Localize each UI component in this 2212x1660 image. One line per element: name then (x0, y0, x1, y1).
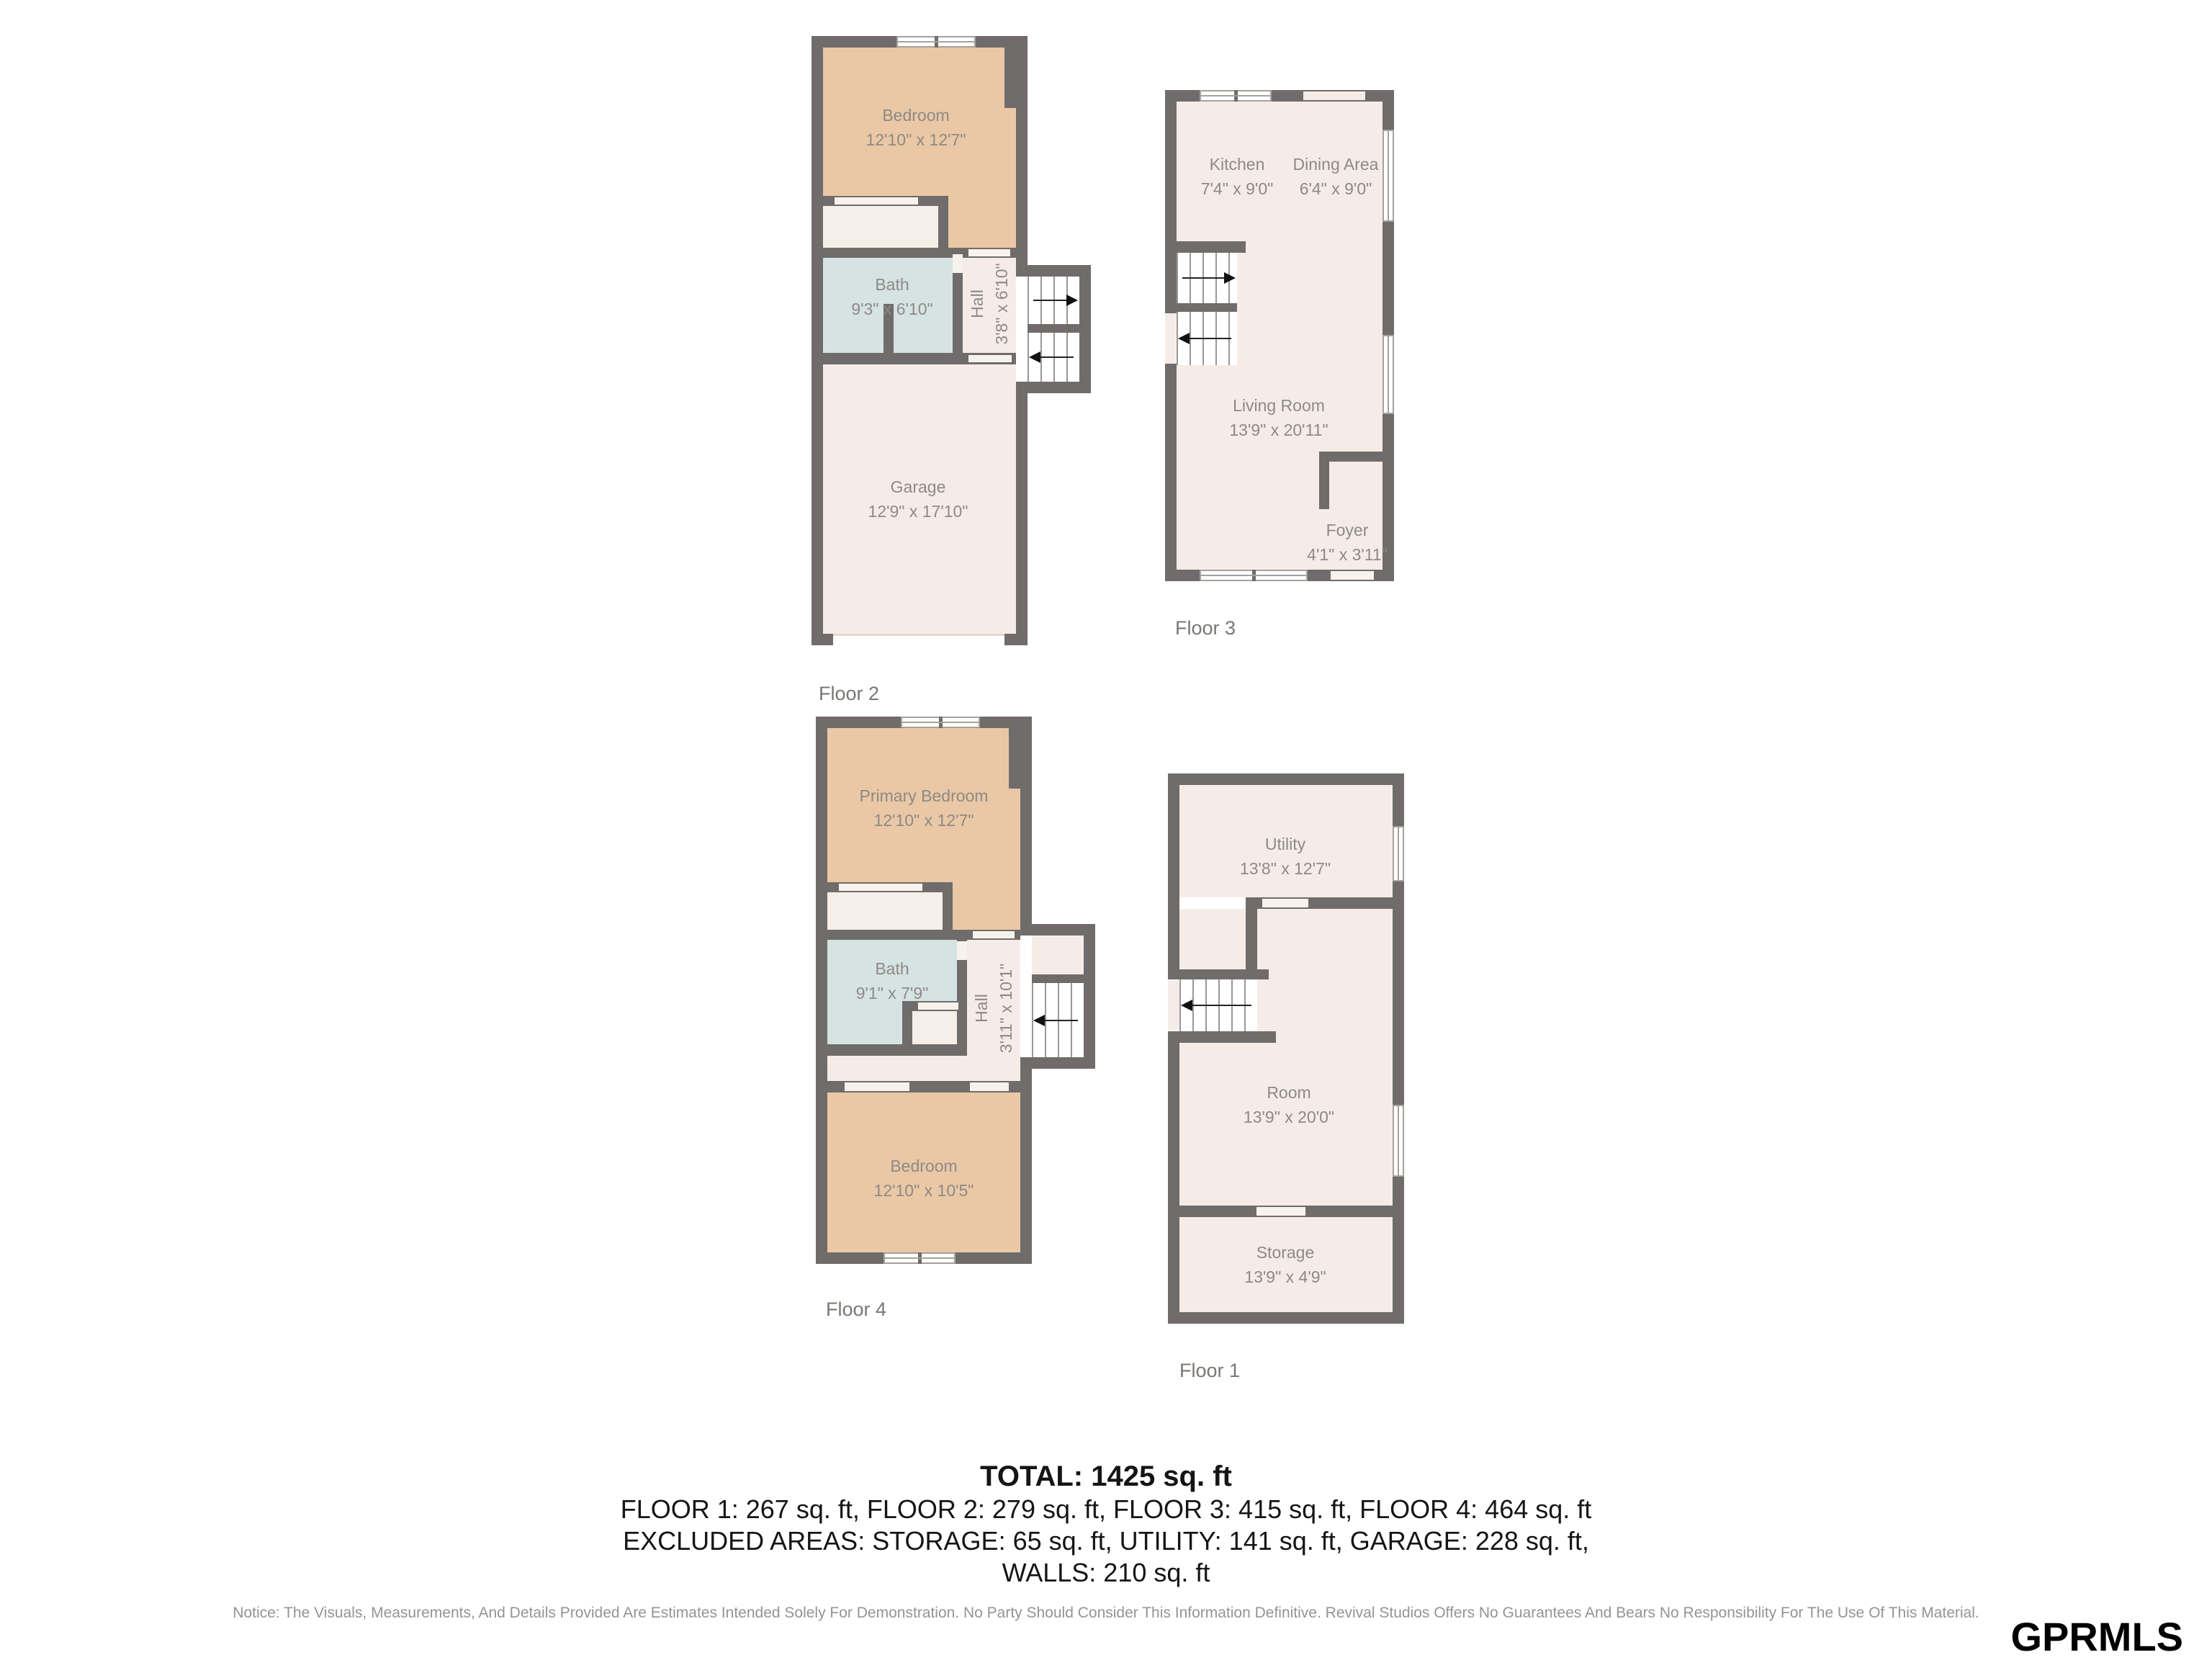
room-dims: 4'1" x 3'11" (1307, 542, 1388, 567)
staircase-up (1177, 253, 1237, 303)
door-opening (1262, 899, 1308, 907)
bedroom-closet (827, 892, 943, 930)
door-opening (968, 249, 1010, 256)
room-label-hall: Hall 3'11" x 10'1" (969, 964, 1018, 1053)
gprmls-logo: GPRMLS (2010, 1613, 2183, 1660)
floor-areas-text: FLOOR 1: 267 sq. ft, FLOOR 2: 279 sq. ft… (0, 1494, 2212, 1525)
room-dims: 3'11" x 10'1" (994, 964, 1018, 1053)
floor-1-plan: Utility 13'8" x 12'7" Room 13'9" x 20'0"… (1168, 773, 1407, 1393)
floor-label: Floor 2 (819, 683, 879, 705)
window (1382, 130, 1394, 222)
room-label-bedroom: Bedroom 12'10" x 10'5" (874, 1154, 974, 1203)
wall-segment (1028, 382, 1091, 393)
room-dims: 3'8" x 6'10" (989, 263, 1014, 344)
wall-segment (1032, 974, 1084, 983)
wall-segment (1016, 382, 1028, 645)
door-opening (957, 941, 967, 960)
corridor-area (827, 1056, 967, 1081)
room-label-foyer: Foyer 4'1" x 3'11" (1307, 518, 1388, 567)
window (901, 717, 980, 728)
window (1382, 335, 1394, 414)
staircase-down (1028, 333, 1079, 382)
staircase-down (1179, 979, 1257, 1031)
room-name: Living Room (1229, 393, 1328, 418)
room-name: Bedroom (866, 103, 966, 127)
room-dims: 12'10" x 10'5" (874, 1178, 974, 1203)
stair-direction-arrow (1033, 300, 1068, 301)
door-opening (970, 1082, 1009, 1091)
walls-area-text: WALLS: 210 sq. ft (0, 1557, 2212, 1589)
door-opening (973, 931, 1015, 938)
floor-label: Floor 4 (826, 1298, 886, 1321)
room-label-kitchen: Kitchen 7'4" x 9'0" (1201, 152, 1274, 201)
excluded-areas-text: EXCLUDED AREAS: STORAGE: 65 sq. ft, UTIL… (0, 1525, 2212, 1557)
window (1200, 570, 1308, 581)
room-dims: 9'1" x 7'9" (856, 981, 929, 1005)
entry-opening (1168, 981, 1179, 1030)
stair-direction-arrow (1039, 356, 1074, 358)
wall-segment (827, 1044, 967, 1056)
wall-segment (1032, 1057, 1095, 1069)
room-label-living: Living Room 13'9" x 20'11" (1229, 393, 1328, 442)
room-label-primary-bedroom: Primary Bedroom 12'10" x 12'7" (860, 784, 989, 833)
wall-segment (816, 717, 827, 1264)
window (1200, 90, 1272, 102)
door-opening (839, 884, 922, 891)
bedroom-closet (823, 206, 938, 248)
room-dims: 6'4" x 9'0" (1293, 176, 1379, 201)
room-name: Hall (965, 263, 989, 344)
wall-segment (1084, 924, 1095, 1069)
wall-segment (1168, 1312, 1404, 1324)
room-dims: 12'10" x 12'7" (866, 127, 966, 152)
small-closet (912, 1011, 957, 1044)
window (884, 1252, 956, 1264)
room-name: Garage (868, 475, 968, 499)
floorplan-sheet: Bedroom 12'10" x 12'7" Bath 9'3" x 6'10"… (0, 0, 2212, 1659)
room-name: Bath (851, 272, 932, 297)
wall-segment (1004, 36, 1017, 108)
room-label-hall: Hall 3'8" x 6'10" (965, 263, 1014, 344)
staircase-up (1028, 277, 1079, 324)
wall-segment (1246, 897, 1257, 969)
door-opening (968, 355, 1012, 362)
room-label-storage: Storage 13'9" x 4'9" (1244, 1240, 1326, 1289)
room-name: Utility (1240, 832, 1331, 856)
room-label-dining: Dining Area 6'4" x 9'0" (1293, 152, 1379, 201)
wall-segment (1168, 773, 1404, 785)
room-dims: 13'9" x 4'9" (1244, 1265, 1326, 1289)
room-name: Primary Bedroom (860, 784, 989, 808)
door-opening (1331, 571, 1374, 580)
stair-landing (1032, 936, 1084, 974)
wall-segment (1177, 303, 1237, 312)
room-label-bath: Bath 9'1" x 7'9" (856, 956, 929, 1005)
stair-direction-arrow (1188, 338, 1231, 339)
room-dims: 12'9" x 17'10" (868, 499, 968, 524)
floor-label: Floor 3 (1175, 617, 1236, 640)
room-name: Dining Area (1293, 152, 1379, 176)
window (896, 36, 976, 48)
room-name: Room (1244, 1080, 1334, 1105)
room-name: Storage (1244, 1240, 1326, 1265)
room-dims: 7'4" x 9'0" (1201, 176, 1274, 201)
door-opening (835, 197, 918, 205)
wall-segment (1168, 1031, 1179, 1324)
door-opening (953, 254, 963, 273)
wall-segment (1079, 265, 1091, 393)
room-dims: 13'9" x 20'0" (1244, 1105, 1334, 1129)
wall-segment (1319, 452, 1329, 509)
door-opening (1256, 1207, 1305, 1216)
room-area (1257, 909, 1393, 1206)
wall-segment (1179, 969, 1269, 979)
disclaimer-notice: Notice: The Visuals, Measurements, And D… (0, 1605, 2212, 1622)
room-dims: 9'3" x 6'10" (851, 297, 932, 321)
wall-segment (902, 1001, 912, 1044)
staircase-down (1177, 312, 1237, 365)
wall-segment (1177, 241, 1246, 253)
wall-segment (1020, 717, 1032, 936)
wall-opening (1303, 91, 1365, 100)
wall-segment (1016, 36, 1028, 277)
wall-segment (1319, 452, 1394, 462)
stair-landing (1179, 909, 1246, 969)
wall-segment (1020, 1057, 1032, 1264)
room-dims: 12'10" x 12'7" (860, 808, 989, 833)
door-opening (845, 1082, 909, 1091)
window (1393, 1105, 1404, 1177)
area-summary: TOTAL: 1425 sq. ft FLOOR 1: 267 sq. ft, … (0, 1459, 2212, 1589)
wall-segment (1009, 717, 1022, 789)
room-name: Bath (856, 956, 929, 981)
room-label-room: Room 13'9" x 20'0" (1244, 1080, 1334, 1129)
room-label-bedroom: Bedroom 12'10" x 12'7" (866, 103, 966, 152)
room-name: Hall (969, 964, 994, 1053)
room-name: Kitchen (1201, 152, 1274, 176)
stair-direction-arrow (1043, 1020, 1078, 1021)
wall-segment (811, 36, 823, 645)
total-area-text: TOTAL: 1425 sq. ft (0, 1459, 2212, 1494)
staircase-down (1032, 983, 1084, 1057)
room-dims: 13'8" x 12'7" (1240, 856, 1331, 881)
room-name: Bedroom (874, 1154, 974, 1178)
floor-label: Floor 1 (1179, 1360, 1240, 1382)
floor-2-plan: Bedroom 12'10" x 12'7" Bath 9'3" x 6'10"… (811, 36, 1092, 713)
room-label-bath: Bath 9'3" x 6'10" (851, 272, 932, 321)
stair-direction-arrow (1182, 277, 1226, 279)
room-dims: 13'9" x 20'11" (1229, 418, 1328, 442)
room-name: Foyer (1307, 518, 1388, 542)
wall-segment (1179, 1031, 1276, 1043)
floor-3-plan: Kitchen 7'4" x 9'0" Dining Area 6'4" x 9… (1165, 90, 1403, 659)
garage-door-opening (833, 634, 1004, 645)
stair-direction-arrow (1191, 1005, 1251, 1006)
room-label-garage: Garage 12'9" x 17'10" (868, 475, 968, 524)
wall-segment (1028, 324, 1079, 333)
wall-segment (1168, 773, 1179, 979)
window (1393, 826, 1404, 881)
floor-4-plan: Primary Bedroom 12'10" x 12'7" Bath 9'1"… (816, 717, 1097, 1336)
wall-segment (938, 196, 948, 253)
room-label-utility: Utility 13'8" x 12'7" (1240, 832, 1331, 881)
door-opening (1165, 313, 1177, 364)
